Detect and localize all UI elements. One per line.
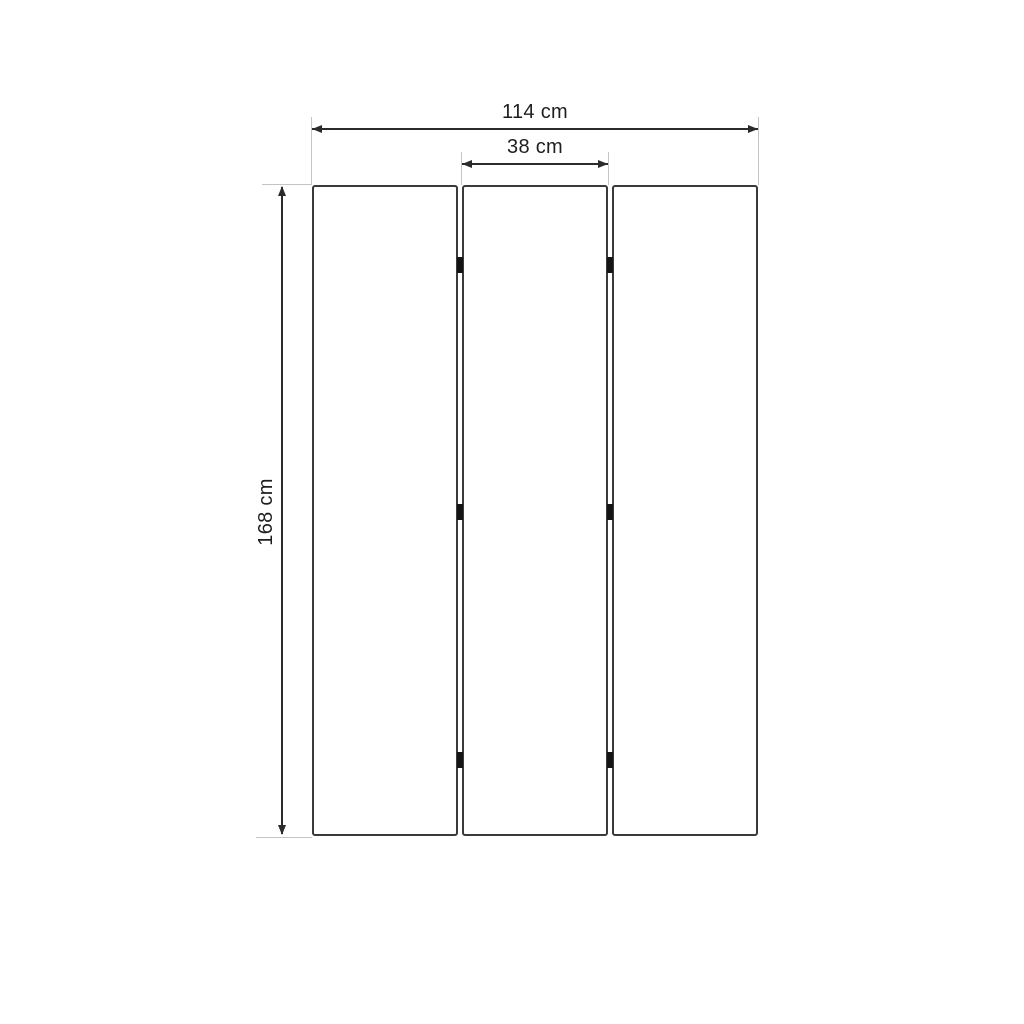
panel-left [312,185,458,836]
height-dimension-label: 168 cm [254,462,278,562]
extension-line [758,117,759,185]
arrowhead-right-icon [748,125,758,133]
extension-line [311,117,312,185]
arrowhead-left-icon [312,125,322,133]
height-dimension-line [281,187,283,834]
hinge [457,504,463,520]
total-width-dimension-label: 114 cm [312,101,758,124]
hinge [607,257,613,273]
arrowhead-right-icon [598,160,608,168]
hinge [607,504,613,520]
hinge [457,752,463,768]
hinge [607,752,613,768]
arrowhead-down-icon [278,825,286,835]
extension-line [461,152,462,185]
arrowhead-left-icon [462,160,472,168]
total-width-dimension-line [312,128,758,130]
dimension-diagram: 114 cm 38 cm 168 cm [0,0,1024,1024]
panel-right [612,185,758,836]
extension-line [262,184,312,185]
hinge [457,257,463,273]
extension-line [608,152,609,185]
extension-line [256,837,312,838]
arrowhead-up-icon [278,186,286,196]
panel-width-dimension-line [462,163,608,165]
panel-width-dimension-label: 38 cm [462,136,608,159]
panel-center [462,185,608,836]
